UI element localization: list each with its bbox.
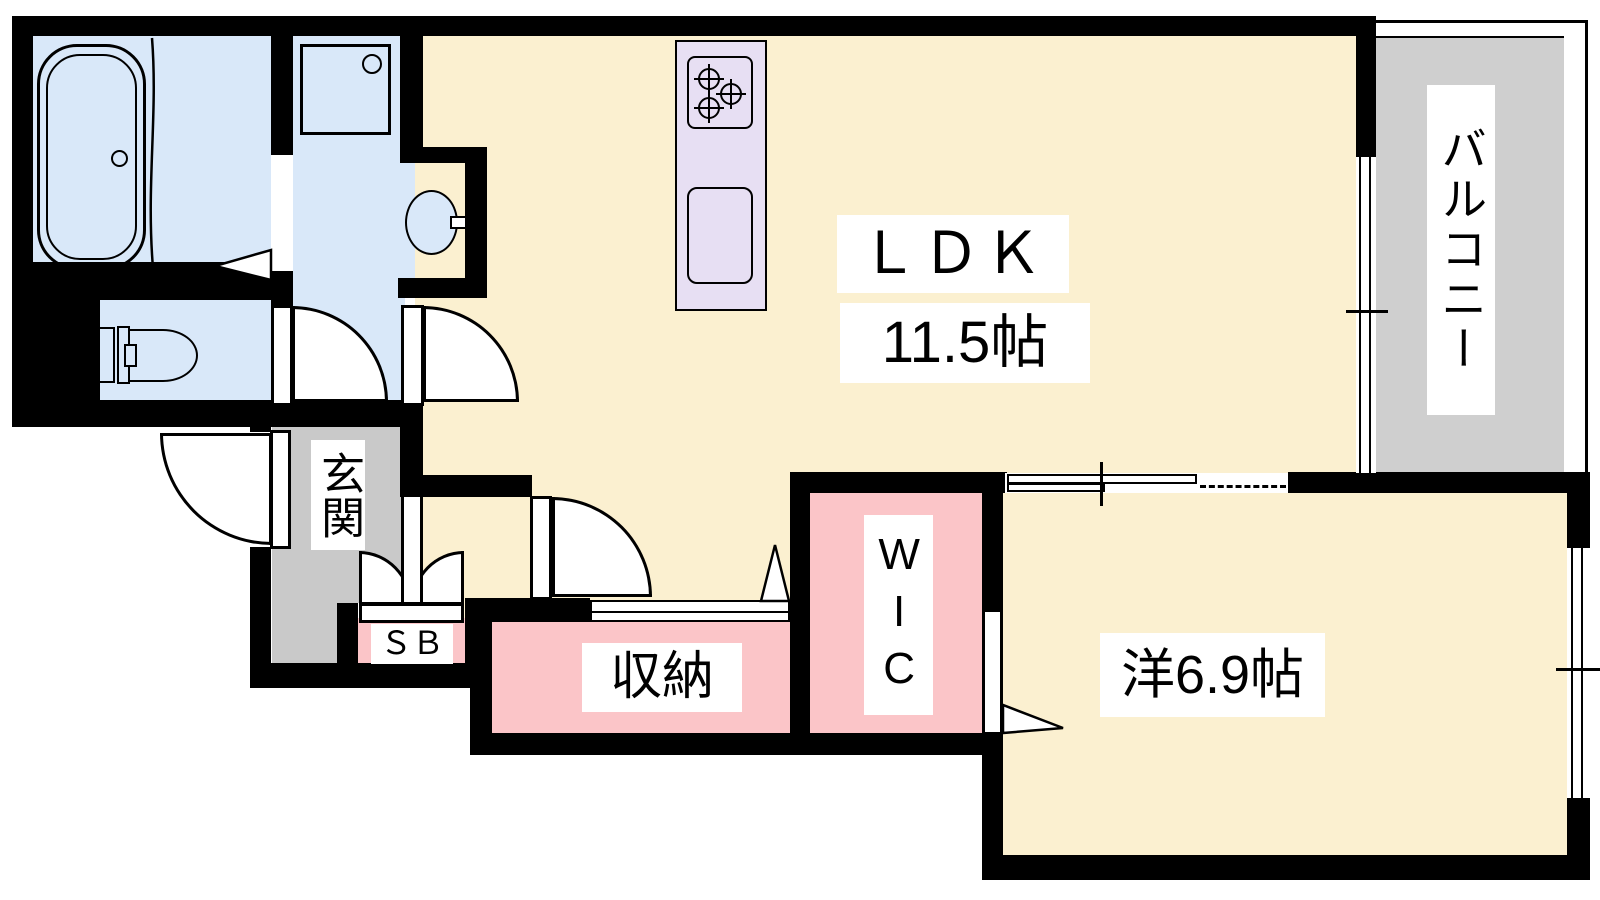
- symbol-overlay: [0, 0, 1600, 900]
- bath-partition-curve: [151, 38, 154, 268]
- balcony-label: バルコニー: [1427, 85, 1495, 415]
- ldk-label: ＬＤＫ: [837, 215, 1069, 293]
- wic-door-arrow: [1003, 705, 1063, 733]
- shoe-box-label: ＳＢ: [371, 624, 453, 664]
- storage-door-arrow: [761, 545, 789, 601]
- entrance-label: 玄関: [311, 440, 365, 550]
- storage-label: 収納: [582, 643, 742, 712]
- ldk-size-label: 11.5帖: [840, 303, 1090, 383]
- wic-label: WIC: [864, 515, 933, 715]
- western-room-label: 洋6.9帖: [1100, 633, 1325, 717]
- bathroom-door-arrow: [215, 250, 271, 280]
- floor-plan: ＬＤＫ 11.5帖 洋6.9帖 バルコニー 玄関 収納 WIC ＳＢ: [0, 0, 1600, 900]
- burner-ticks: [694, 64, 746, 123]
